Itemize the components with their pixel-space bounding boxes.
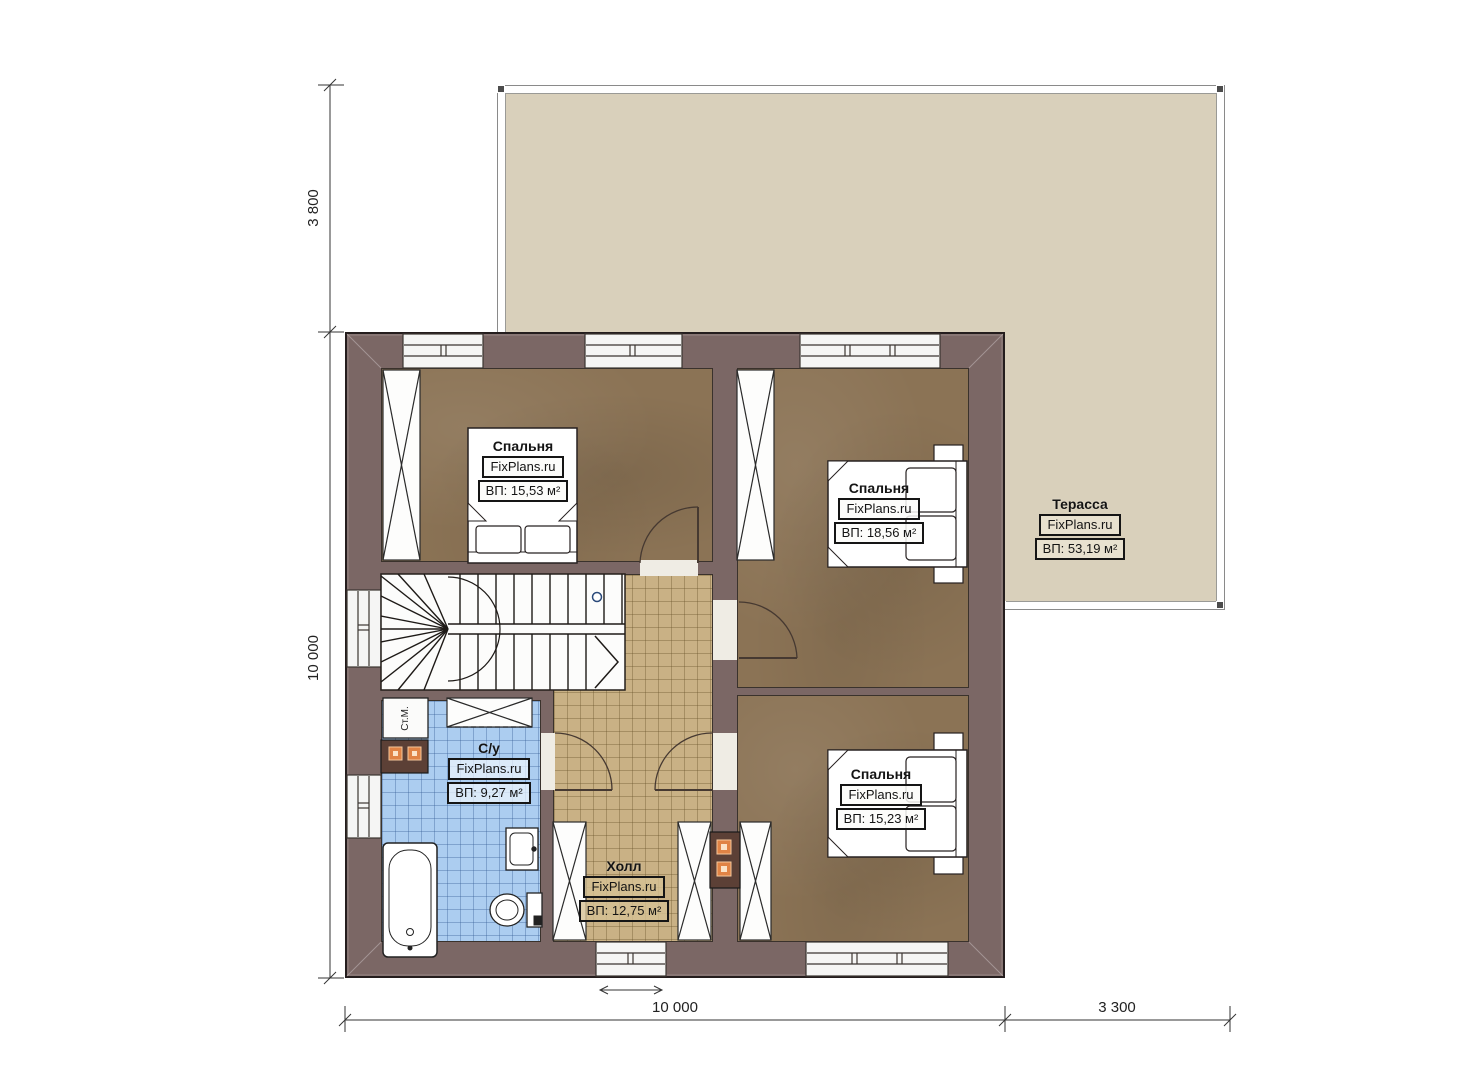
- floor-plan-canvas: 3 800 10 000 10 000 3 300 Спальня FixPla…: [0, 0, 1473, 1080]
- room-label-bathroom: С/у FixPlans.ru ВП: 9,27 м²: [414, 740, 564, 804]
- room-label-bedroom3: Спальня FixPlans.ru ВП: 15,23 м²: [806, 766, 956, 830]
- washing-machine-text: Ст.М.: [400, 706, 411, 731]
- door-bedroom3: [655, 733, 737, 790]
- dim-bottom-right: 3 300: [1098, 999, 1136, 1016]
- dim-left-main: 10 000: [305, 635, 322, 681]
- wardrobe-bedroom3: [740, 822, 771, 940]
- room-area: ВП: 12,75 м²: [579, 900, 670, 922]
- stair-post-marker: [593, 593, 602, 602]
- dim-left-top: 3 800: [305, 189, 322, 227]
- room-name: Спальня: [849, 480, 909, 496]
- room-label-hall: Холл FixPlans.ru ВП: 12,75 м²: [549, 858, 699, 922]
- window-top-3: [800, 334, 940, 368]
- door-bedroom1: [640, 507, 698, 576]
- door-bedroom2: [713, 600, 797, 660]
- wardrobe-bedroom2: [737, 370, 774, 560]
- bathroom-cabinet: [447, 698, 532, 727]
- room-name: С/у: [478, 740, 500, 756]
- window-left-1: [347, 590, 381, 667]
- washing-machine-label: Ст.М.: [383, 698, 428, 738]
- room-name: Терасса: [1052, 496, 1108, 512]
- brand-watermark: FixPlans.ru: [482, 456, 563, 478]
- room-name: Спальня: [851, 766, 911, 782]
- wardrobe-bedroom1: [383, 370, 420, 560]
- bathtub: [383, 843, 437, 957]
- window-left-2: [347, 775, 381, 838]
- dim-bottom-main: 10 000: [652, 999, 698, 1016]
- room-label-bedroom2: Спальня FixPlans.ru ВП: 18,56 м²: [804, 480, 954, 544]
- staircase: [381, 574, 625, 690]
- brand-watermark: FixPlans.ru: [1039, 514, 1120, 536]
- room-area: ВП: 15,23 м²: [836, 808, 927, 830]
- brand-watermark: FixPlans.ru: [448, 758, 529, 780]
- brand-watermark: FixPlans.ru: [583, 876, 664, 898]
- room-label-bedroom1: Спальня FixPlans.ru ВП: 15,53 м²: [448, 438, 598, 502]
- window-top-2: [585, 334, 682, 368]
- window-top-1: [403, 334, 483, 368]
- room-area: ВП: 18,56 м²: [834, 522, 925, 544]
- window-bottom-1: [596, 942, 666, 976]
- brand-watermark: FixPlans.ru: [840, 784, 921, 806]
- brand-watermark: FixPlans.ru: [838, 498, 919, 520]
- toilet: [490, 893, 542, 927]
- room-name: Спальня: [493, 438, 553, 454]
- room-label-terrace: Терасса FixPlans.ru ВП: 53,19 м²: [1005, 496, 1155, 560]
- room-name: Холл: [606, 858, 641, 874]
- sink: [506, 828, 538, 870]
- room-area: ВП: 53,19 м²: [1035, 538, 1126, 560]
- room-area: ВП: 15,53 м²: [478, 480, 569, 502]
- plan-linework: 3 800 10 000 10 000 3 300: [0, 0, 1473, 1080]
- window-bottom-2: [806, 942, 948, 976]
- chimney: [710, 832, 740, 888]
- room-area: ВП: 9,27 м²: [447, 782, 530, 804]
